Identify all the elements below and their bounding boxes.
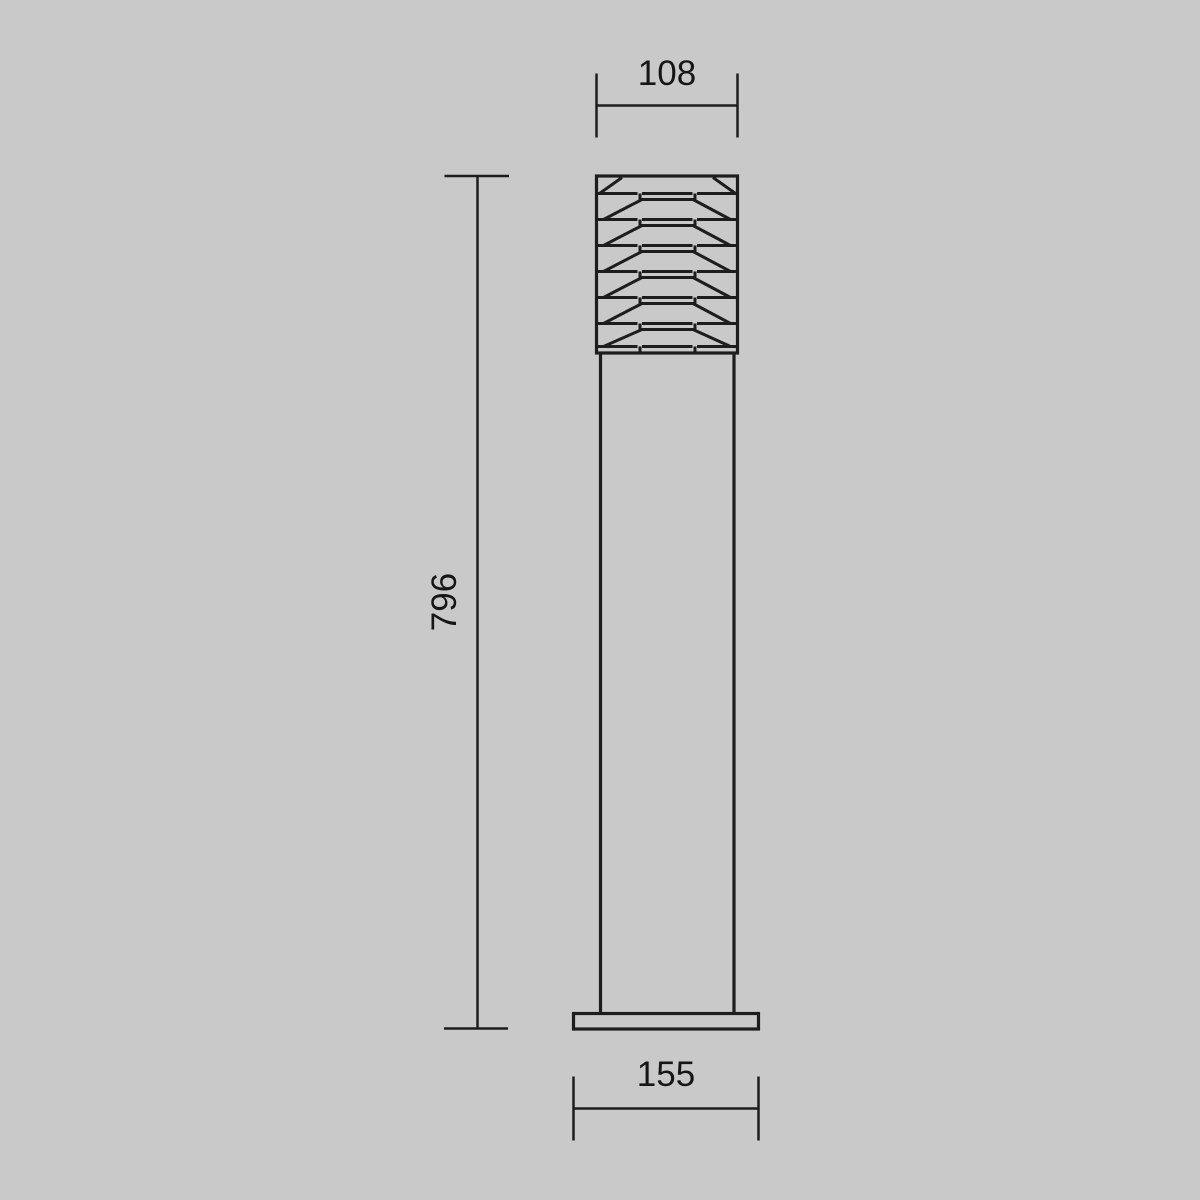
dimension-drawing: 108 796 155 — [0, 0, 1200, 1200]
pole-sides — [601, 353, 735, 1014]
lamp-pole — [601, 353, 735, 1014]
lamp-head — [597, 176, 738, 353]
dimension-label-overall-height: 796 — [425, 573, 464, 631]
dimension-overall-height: 796 — [425, 176, 509, 1029]
lamp-base — [574, 1014, 759, 1030]
louver-divider-lines — [598, 194, 736, 347]
dimension-base-width: 155 — [574, 1055, 759, 1141]
dimension-head-width: 108 — [597, 54, 738, 138]
base-plate-outline — [574, 1014, 759, 1030]
dimension-label-base-width: 155 — [637, 1055, 695, 1094]
technical-drawing-canvas: 108 796 155 — [0, 0, 1200, 1200]
dimension-label-head-width: 108 — [638, 54, 696, 93]
louver-slat-diagonals — [600, 178, 736, 347]
